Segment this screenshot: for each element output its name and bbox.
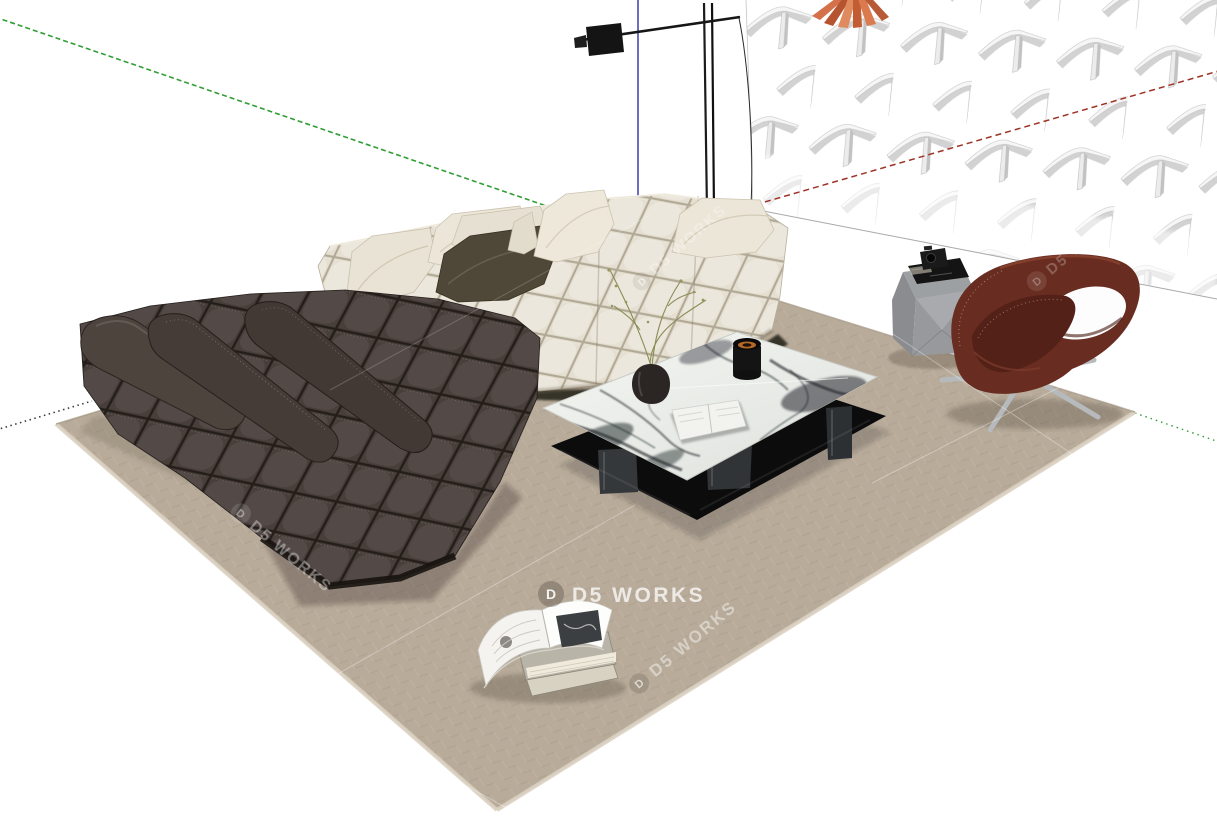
candle-holder[interactable] <box>733 338 761 380</box>
scene-canvas: D D5 WORKS D D5 WORKS D D5 WORKS D D5 WO… <box>0 0 1217 825</box>
lamp-head <box>586 23 624 56</box>
watermark-text: D5 WORKS <box>572 584 705 607</box>
green-axis-negative <box>1135 413 1217 443</box>
wall-panel-3d[interactable] <box>740 0 1217 310</box>
3d-viewport[interactable]: D D5 WORKS D D5 WORKS D D5 WORKS D D5 WO… <box>0 0 1217 825</box>
watermark-logo: D <box>546 586 556 602</box>
camera-decor[interactable] <box>920 246 948 270</box>
floor-lamp[interactable] <box>574 3 752 212</box>
